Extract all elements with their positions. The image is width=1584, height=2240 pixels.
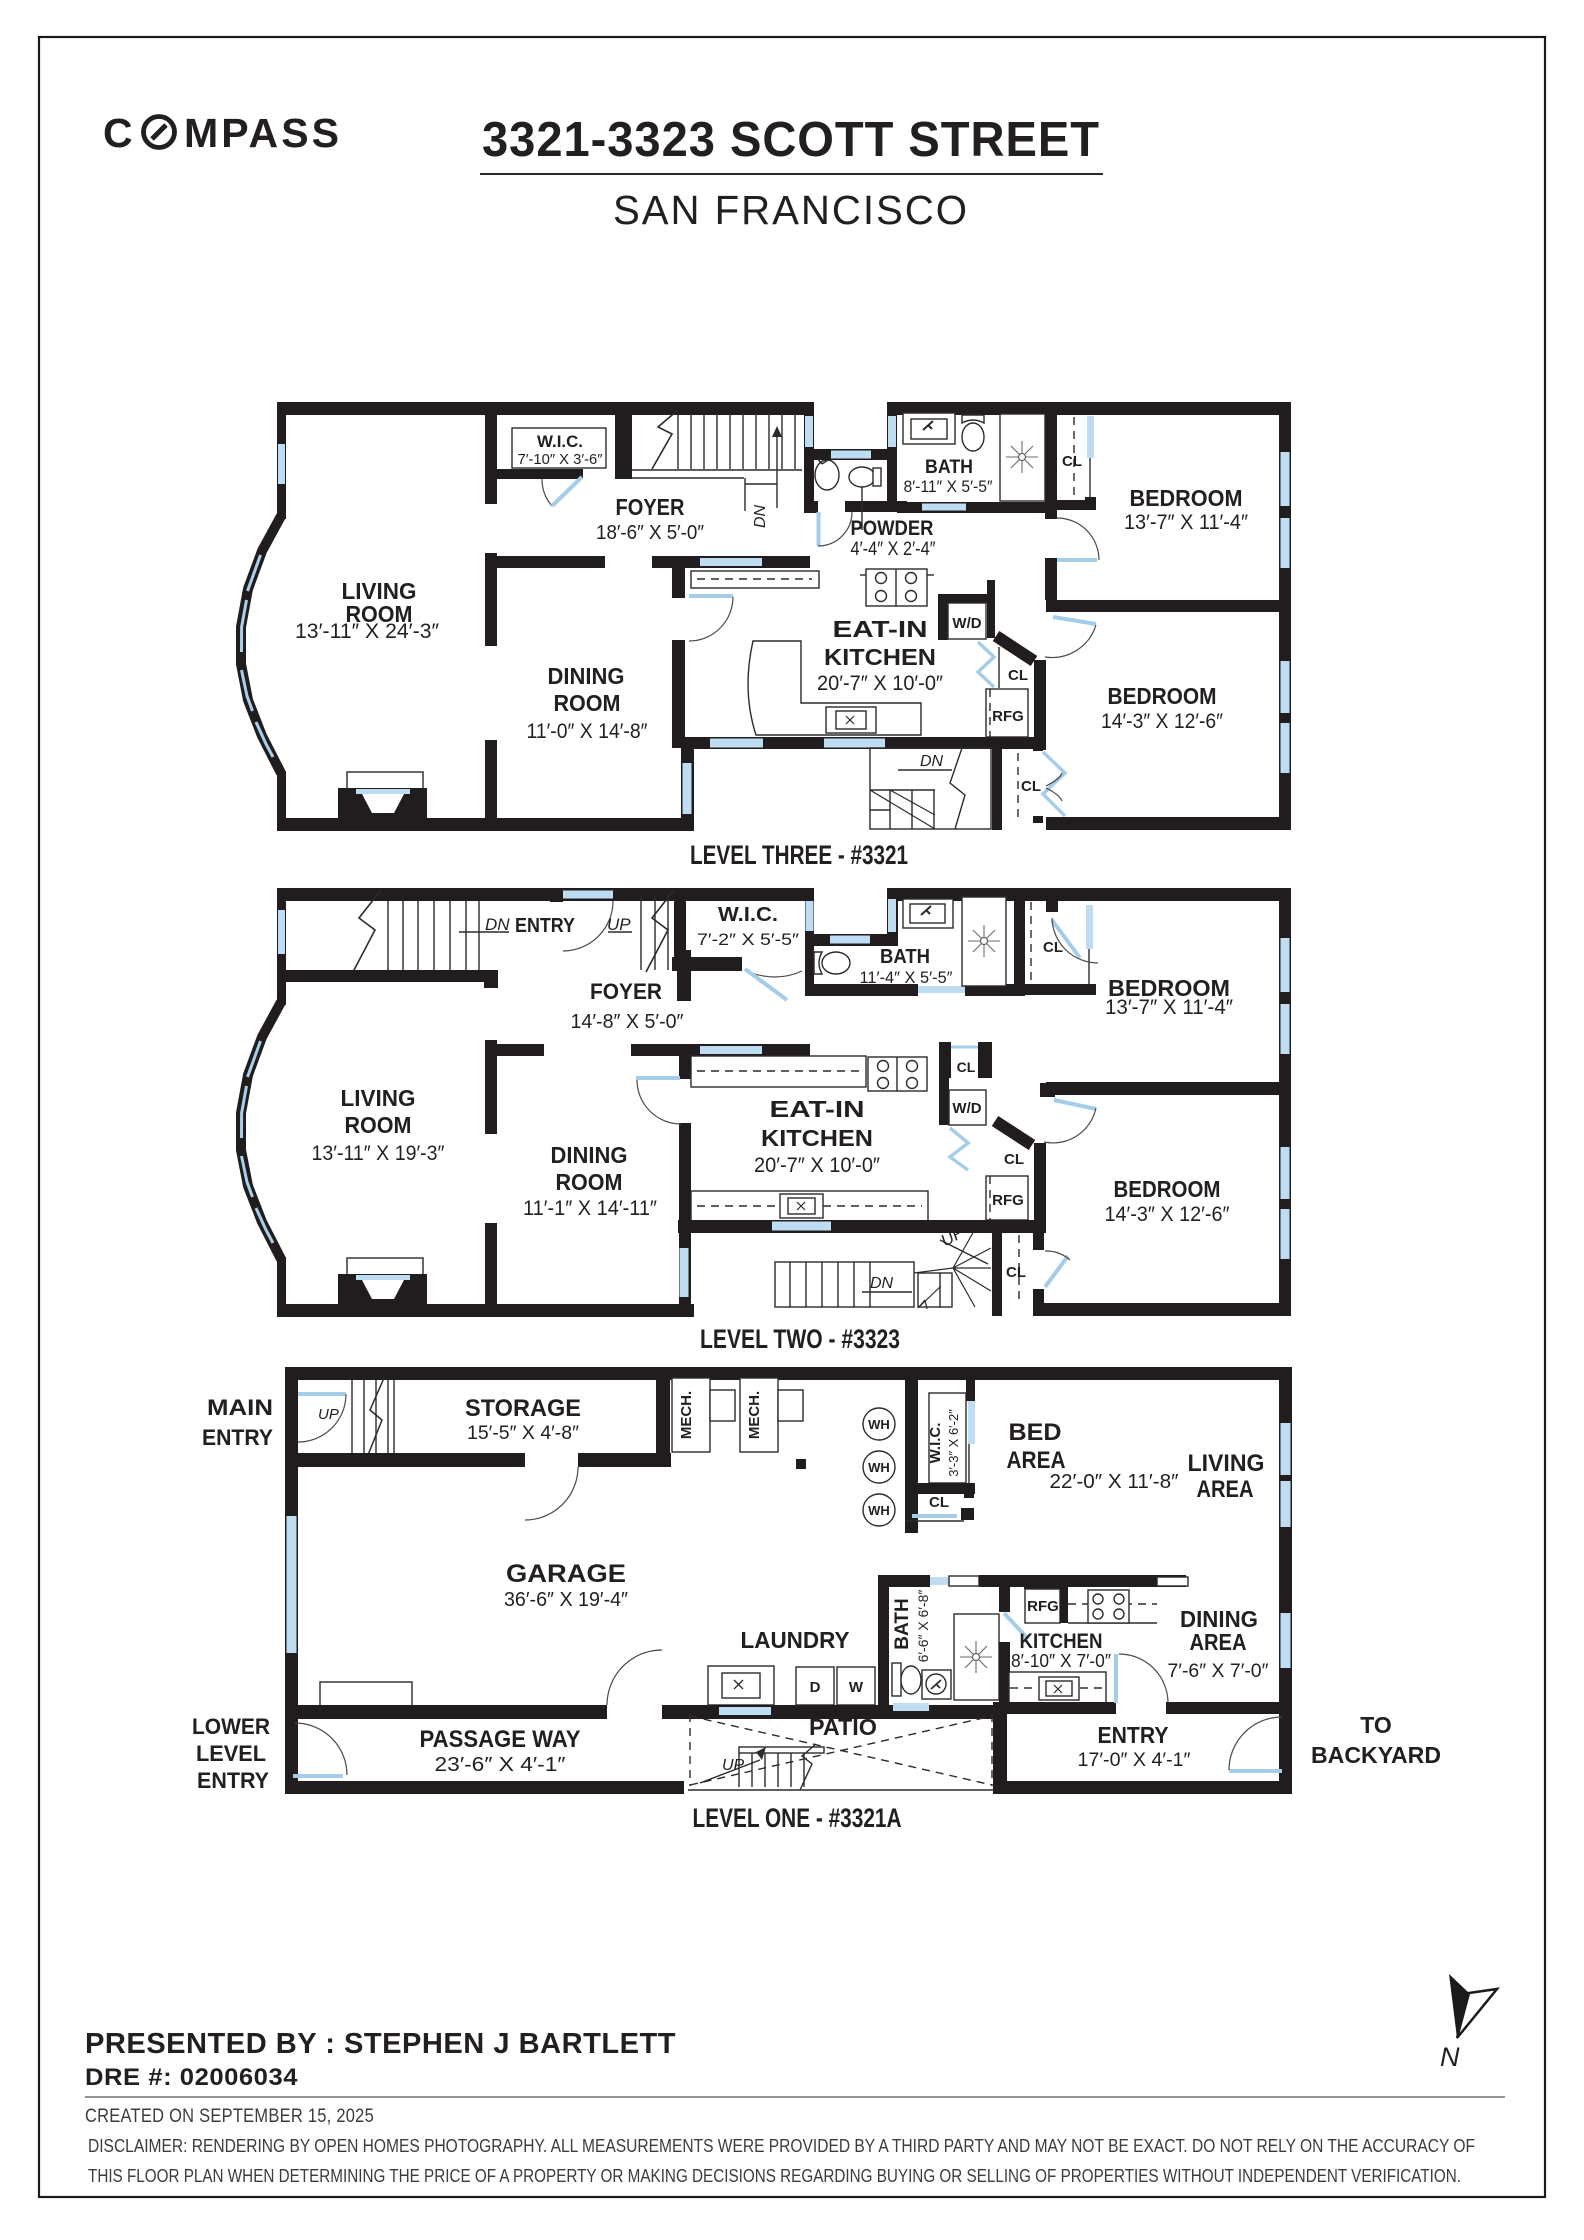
svg-text:UP: UP xyxy=(318,1406,339,1423)
svg-text:11′-0″ X 14′-8″: 11′-0″ X 14′-8″ xyxy=(527,720,649,743)
svg-text:7′-2″ X 5′-5″: 7′-2″ X 5′-5″ xyxy=(697,930,799,949)
svg-text:EAT-IN: EAT-IN xyxy=(770,1096,865,1122)
svg-text:DN: DN xyxy=(752,504,769,528)
svg-text:15′-5″ X 4′-8″: 15′-5″ X 4′-8″ xyxy=(467,1423,579,1444)
svg-text:DISCLAIMER: RENDERING BY OPEN: DISCLAIMER: RENDERING BY OPEN HOMES PHOT… xyxy=(88,2135,1475,2156)
svg-text:3′-3″ X 6′-2″: 3′-3″ X 6′-2″ xyxy=(946,1409,961,1477)
svg-text:W/D: W/D xyxy=(952,615,981,632)
svg-text:WH: WH xyxy=(868,1460,890,1475)
svg-text:7′-6″ X 7′-0″: 7′-6″ X 7′-0″ xyxy=(1168,1661,1269,1682)
svg-text:POWDER: POWDER xyxy=(851,517,934,540)
svg-text:CL: CL xyxy=(957,1059,976,1075)
svg-text:LOWER: LOWER xyxy=(192,1714,270,1739)
svg-text:ENTRY: ENTRY xyxy=(197,1768,269,1793)
svg-text:BEDROOM: BEDROOM xyxy=(1130,485,1243,511)
svg-text:13′-11″ X 19′-3″: 13′-11″ X 19′-3″ xyxy=(312,1142,446,1165)
svg-text:W: W xyxy=(849,1679,864,1696)
svg-text:DN: DN xyxy=(485,915,510,934)
svg-text:STORAGE: STORAGE xyxy=(465,1395,581,1422)
svg-text:WH: WH xyxy=(868,1503,890,1518)
svg-text:BED: BED xyxy=(1009,1419,1062,1446)
svg-text:14′-3″ X 12′-6″: 14′-3″ X 12′-6″ xyxy=(1101,710,1224,733)
svg-text:RFG: RFG xyxy=(1027,1598,1059,1615)
svg-text:KITCHEN: KITCHEN xyxy=(761,1125,873,1151)
svg-text:KITCHEN: KITCHEN xyxy=(1020,1630,1103,1653)
svg-text:4′-4″ X 2′-4″: 4′-4″ X 2′-4″ xyxy=(851,539,936,560)
svg-text:20′-7″ X 10′-0″: 20′-7″ X 10′-0″ xyxy=(817,672,944,695)
svg-text:BATH: BATH xyxy=(892,1598,913,1649)
svg-text:BACKYARD: BACKYARD xyxy=(1311,1742,1441,1768)
svg-text:ENTRY: ENTRY xyxy=(202,1425,273,1450)
svg-text:MECH.: MECH. xyxy=(678,1391,695,1439)
svg-text:ROOM: ROOM xyxy=(554,690,621,716)
svg-text:DRE #: 02006034: DRE #: 02006034 xyxy=(85,2064,298,2091)
svg-text:20′-7″ X 10′-0″: 20′-7″ X 10′-0″ xyxy=(754,1154,881,1177)
svg-text:7′-10″ X 3′-6″: 7′-10″ X 3′-6″ xyxy=(518,451,604,468)
svg-text:N: N xyxy=(1440,2042,1460,2072)
svg-text:MAIN: MAIN xyxy=(207,1395,273,1420)
svg-text:3321-3323 SCOTT STREET: 3321-3323 SCOTT STREET xyxy=(482,113,1100,167)
svg-text:BATH: BATH xyxy=(925,457,973,478)
svg-text:MECH.: MECH. xyxy=(746,1391,763,1439)
svg-text:KITCHEN: KITCHEN xyxy=(824,644,936,670)
svg-text:W/D: W/D xyxy=(952,1100,981,1117)
svg-text:W.I.C.: W.I.C. xyxy=(537,432,583,451)
svg-text:CL: CL xyxy=(1006,1264,1026,1281)
svg-text:CL: CL xyxy=(1008,667,1028,684)
svg-text:SAN FRANCISCO: SAN FRANCISCO xyxy=(613,187,969,233)
svg-text:FOYER: FOYER xyxy=(590,979,662,1004)
svg-text:LEVEL: LEVEL xyxy=(196,1741,266,1766)
svg-text:ENTRY: ENTRY xyxy=(515,915,576,937)
svg-text:AREA: AREA xyxy=(1007,1447,1066,1474)
svg-text:LEVEL ONE - #3321A: LEVEL ONE - #3321A xyxy=(693,1803,902,1833)
svg-text:36′-6″ X 19′-4″: 36′-6″ X 19′-4″ xyxy=(504,1589,628,1611)
svg-text:RFG: RFG xyxy=(992,708,1024,725)
svg-text:TO: TO xyxy=(1360,1712,1392,1738)
svg-text:CL: CL xyxy=(1062,453,1082,470)
svg-text:UP: UP xyxy=(722,1757,745,1774)
svg-text:BEDROOM: BEDROOM xyxy=(1114,1176,1221,1202)
svg-text:D: D xyxy=(810,1679,821,1696)
svg-text:LAUNDRY: LAUNDRY xyxy=(741,1627,850,1653)
svg-text:13′-7″ X 11′-4″: 13′-7″ X 11′-4″ xyxy=(1105,996,1234,1019)
svg-text:AREA: AREA xyxy=(1197,1476,1254,1503)
svg-text:8′-10″ X 7′-0″: 8′-10″ X 7′-0″ xyxy=(1011,1651,1112,1671)
svg-text:UP: UP xyxy=(607,915,631,934)
svg-text:14′-8″ X 5′-0″: 14′-8″ X 5′-0″ xyxy=(571,1011,684,1033)
svg-text:MPASS: MPASS xyxy=(184,110,342,156)
svg-text:BATH: BATH xyxy=(880,946,930,968)
svg-text:LIVING: LIVING xyxy=(341,1085,416,1111)
svg-text:CL: CL xyxy=(1021,778,1041,795)
svg-text:ROOM: ROOM xyxy=(345,1112,412,1138)
svg-text:CL: CL xyxy=(1043,939,1063,956)
svg-text:WH: WH xyxy=(868,1417,890,1432)
svg-text:DN: DN xyxy=(870,1275,894,1292)
svg-text:W.I.C.: W.I.C. xyxy=(927,1423,944,1464)
svg-text:13′-7″ X 11′-4″: 13′-7″ X 11′-4″ xyxy=(1124,511,1249,534)
svg-text:C: C xyxy=(103,110,133,156)
svg-text:FOYER: FOYER xyxy=(616,494,685,520)
svg-text:GARAGE: GARAGE xyxy=(506,1560,626,1588)
svg-text:EAT-IN: EAT-IN xyxy=(833,616,928,642)
svg-text:11′-4″ X 5′-5″: 11′-4″ X 5′-5″ xyxy=(860,968,953,987)
svg-text:DINING: DINING xyxy=(548,663,625,689)
svg-text:6′-6″ X 6′-8″: 6′-6″ X 6′-8″ xyxy=(915,1590,931,1663)
svg-text:CL: CL xyxy=(1004,1151,1024,1168)
svg-text:PRESENTED BY : STEPHEN J BARTL: PRESENTED BY : STEPHEN J BARTLETT xyxy=(85,2028,676,2060)
svg-text:13′-11″ X 24′-3″: 13′-11″ X 24′-3″ xyxy=(295,620,440,643)
svg-text:PASSAGE WAY: PASSAGE WAY xyxy=(420,1726,581,1753)
svg-text:ROOM: ROOM xyxy=(556,1169,623,1195)
svg-text:14′-3″ X 12′-6″: 14′-3″ X 12′-6″ xyxy=(1105,1203,1231,1226)
svg-text:LEVEL THREE - #3321: LEVEL THREE - #3321 xyxy=(690,840,908,870)
svg-text:22′-0″ X 11′-8″: 22′-0″ X 11′-8″ xyxy=(1050,1471,1179,1493)
svg-text:LEVEL TWO - #3323: LEVEL TWO - #3323 xyxy=(700,1324,900,1354)
svg-text:LIVING: LIVING xyxy=(1188,1450,1265,1477)
svg-text:11′-1″ X 14′-11″: 11′-1″ X 14′-11″ xyxy=(523,1197,658,1220)
svg-text:RFG: RFG xyxy=(992,1192,1024,1209)
svg-text:8′-11″ X 5′-5″: 8′-11″ X 5′-5″ xyxy=(904,477,993,496)
svg-text:ENTRY: ENTRY xyxy=(1098,1722,1169,1748)
svg-text:17′-0″ X 4′-1″: 17′-0″ X 4′-1″ xyxy=(1078,1750,1191,1771)
svg-text:DINING: DINING xyxy=(551,1142,628,1168)
svg-text:THIS FLOOR PLAN WHEN DETERMINI: THIS FLOOR PLAN WHEN DETERMINING THE PRI… xyxy=(88,2165,1461,2186)
svg-text:CREATED ON SEPTEMBER 15, 2025: CREATED ON SEPTEMBER 15, 2025 xyxy=(85,2106,374,2127)
svg-text:PATIO: PATIO xyxy=(809,1714,877,1740)
svg-text:CL: CL xyxy=(929,1494,949,1511)
svg-text:23′-6″ X 4′-1″: 23′-6″ X 4′-1″ xyxy=(435,1754,566,1776)
svg-text:DN: DN xyxy=(920,753,944,770)
svg-text:W.I.C.: W.I.C. xyxy=(718,904,778,926)
svg-text:18′-6″ X 5′-0″: 18′-6″ X 5′-0″ xyxy=(596,522,704,544)
svg-text:BEDROOM: BEDROOM xyxy=(1108,683,1217,709)
svg-text:AREA: AREA xyxy=(1190,1629,1247,1655)
